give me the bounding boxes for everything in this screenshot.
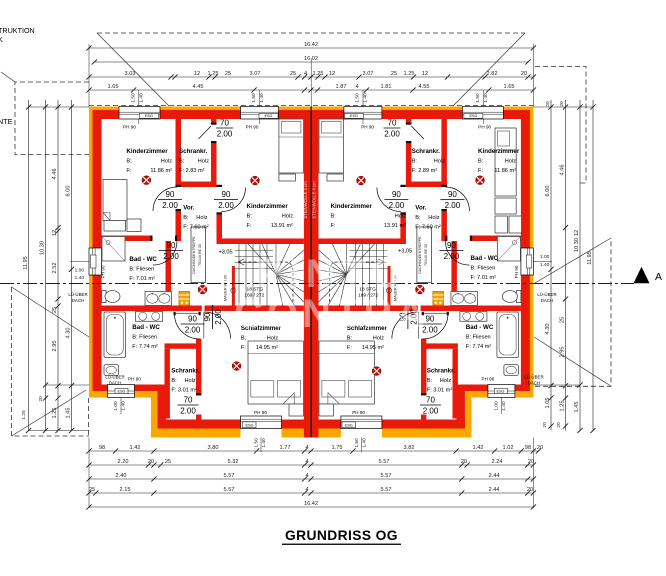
- svg-text:1.00: 1.00: [540, 254, 550, 260]
- svg-text:Holz: Holz: [196, 215, 207, 221]
- svg-text:1.40: 1.40: [259, 93, 265, 103]
- svg-text:1.40: 1.40: [540, 262, 550, 268]
- svg-text:DACH: DACH: [528, 381, 540, 386]
- svg-text:4: 4: [305, 459, 308, 465]
- svg-text:12: 12: [574, 230, 580, 236]
- svg-text:MAUER Hr 100: MAUER Hr 100: [223, 275, 227, 301]
- svg-text:LÜ-ÜBER: LÜ-ÜBER: [68, 292, 87, 297]
- svg-text:4.45: 4.45: [193, 84, 204, 90]
- svg-text:20: 20: [537, 445, 543, 451]
- svg-text:1.00: 1.00: [75, 268, 85, 274]
- svg-text:Holz: Holz: [282, 214, 293, 220]
- svg-text:B:: B:: [247, 214, 253, 220]
- svg-text:14.95 m²: 14.95 m²: [256, 345, 278, 351]
- svg-text:STEINWOLLE 4 cm: STEINWOLLE 4 cm: [303, 181, 308, 219]
- svg-text:2.00: 2.00: [384, 130, 400, 139]
- svg-text:2.20: 2.20: [118, 459, 129, 465]
- svg-text:2.00: 2.00: [444, 252, 460, 261]
- svg-text:4: 4: [305, 487, 308, 493]
- svg-text:K: K: [0, 35, 3, 44]
- svg-text:B:: B:: [171, 378, 177, 384]
- svg-text:F: 2.83 m²: F: 2.83 m²: [179, 168, 205, 174]
- svg-text:2.00: 2.00: [445, 201, 461, 210]
- svg-text:CONTRA: CONTRA: [234, 292, 429, 336]
- svg-text:B:: B:: [478, 159, 484, 165]
- svg-text:1.40: 1.40: [138, 93, 144, 103]
- svg-text:F: 7.01 m²: F: 7.01 m²: [471, 275, 497, 281]
- svg-text:90: 90: [166, 190, 175, 199]
- svg-text:2.00: 2.00: [180, 407, 196, 416]
- svg-text:ESG: ESG: [345, 423, 353, 427]
- svg-text:6.00: 6.00: [66, 186, 72, 197]
- svg-text:ESG: ESG: [264, 114, 272, 118]
- svg-text:1.05: 1.05: [545, 398, 551, 409]
- svg-text:+3,05: +3,05: [219, 250, 233, 256]
- svg-text:1.40: 1.40: [501, 401, 507, 411]
- svg-text:1.00: 1.00: [493, 401, 499, 411]
- svg-text:25: 25: [560, 317, 566, 323]
- svg-text:PH 90: PH 90: [128, 377, 141, 382]
- svg-text:1.40: 1.40: [121, 401, 127, 411]
- svg-text:ESG: ESG: [469, 114, 477, 118]
- svg-text:Bad - WC: Bad - WC: [466, 324, 494, 331]
- svg-text:Holz: Holz: [198, 159, 209, 165]
- svg-text:1.25: 1.25: [208, 71, 219, 77]
- svg-text:20: 20: [38, 396, 44, 402]
- svg-text:1.40: 1.40: [75, 275, 85, 281]
- svg-text:90: 90: [222, 190, 231, 199]
- svg-text:12: 12: [329, 71, 335, 77]
- svg-text:ESG: ESG: [245, 423, 253, 427]
- svg-text:5.57: 5.57: [379, 459, 390, 465]
- svg-text:STEINWOLLE 4 cm: STEINWOLLE 4 cm: [312, 181, 317, 219]
- svg-text:B:: B:: [415, 215, 421, 221]
- svg-text:B:: B:: [347, 336, 353, 342]
- svg-text:13.91 m²: 13.91 m²: [384, 223, 406, 229]
- svg-text:2.82: 2.82: [487, 71, 498, 77]
- svg-text:Schrankr.: Schrankr.: [179, 148, 207, 155]
- svg-text:2.44: 2.44: [489, 473, 500, 479]
- svg-text:2.00: 2.00: [389, 201, 405, 210]
- svg-text:3.07: 3.07: [363, 71, 374, 77]
- svg-text:20: 20: [559, 101, 565, 107]
- svg-text:2.00: 2.00: [423, 407, 439, 416]
- svg-text:2.00: 2.00: [162, 201, 178, 210]
- svg-text:Holz: Holz: [373, 336, 384, 342]
- svg-text:ESG: ESG: [117, 390, 125, 394]
- svg-text:16.42: 16.42: [304, 501, 318, 507]
- svg-text:5.57: 5.57: [381, 487, 392, 493]
- svg-text:F: 7.74 m²: F: 7.74 m²: [466, 344, 492, 350]
- svg-text:12: 12: [194, 71, 200, 77]
- svg-text:Holz: Holz: [267, 336, 278, 342]
- svg-text:25: 25: [290, 71, 296, 77]
- svg-text:5.57: 5.57: [224, 473, 235, 479]
- svg-text:2.52: 2.52: [52, 263, 58, 274]
- svg-text:Schrankr.: Schrankr.: [427, 368, 455, 375]
- svg-text:90: 90: [392, 190, 401, 199]
- svg-text:F:: F:: [331, 223, 336, 229]
- svg-text:PH 90: PH 90: [246, 125, 259, 130]
- svg-text:ESG: ESG: [350, 114, 358, 118]
- svg-text:1.00: 1.00: [113, 401, 119, 411]
- svg-text:3.07: 3.07: [250, 71, 261, 77]
- svg-text:F: 7.60 m²: F: 7.60 m²: [183, 225, 209, 231]
- svg-text:Holz: Holz: [395, 214, 406, 220]
- svg-text:PH 90: PH 90: [123, 125, 136, 130]
- svg-text:2.00: 2.00: [185, 326, 201, 335]
- svg-text:10.30: 10.30: [40, 241, 46, 255]
- svg-text:1.65: 1.65: [504, 84, 515, 90]
- svg-text:LÜ-ÜBER: LÜ-ÜBER: [105, 375, 124, 380]
- svg-text:Vor.: Vor.: [183, 205, 195, 212]
- svg-text:Bad - WC: Bad - WC: [132, 324, 160, 331]
- svg-text:Holz: Holz: [505, 159, 516, 165]
- svg-text:PH 90: PH 90: [361, 125, 374, 130]
- svg-text:Holz: Holz: [434, 159, 445, 165]
- svg-text:1.81: 1.81: [381, 84, 392, 90]
- svg-text:70: 70: [220, 119, 229, 128]
- svg-text:Vor.: Vor.: [415, 205, 427, 212]
- svg-text:25: 25: [52, 307, 58, 313]
- svg-text:B:: B:: [183, 215, 189, 221]
- svg-text:B: Fliesen: B: Fliesen: [129, 267, 154, 273]
- svg-text:F:: F:: [478, 168, 483, 174]
- svg-text:1.77: 1.77: [280, 445, 291, 451]
- svg-text:20: 20: [556, 422, 562, 428]
- svg-text:4.30: 4.30: [545, 324, 551, 335]
- svg-text:1.25: 1.25: [52, 408, 58, 419]
- svg-text:70/140 RE 30: 70/140 RE 30: [198, 244, 202, 266]
- svg-text:4.46: 4.46: [52, 169, 58, 180]
- svg-text:NTE: NTE: [0, 117, 13, 126]
- svg-text:DACH: DACH: [72, 298, 84, 303]
- svg-text:1.25: 1.25: [404, 71, 415, 77]
- svg-text:1.40: 1.40: [361, 438, 367, 448]
- svg-text:1.45: 1.45: [66, 408, 72, 419]
- svg-text:1.40: 1.40: [261, 438, 267, 448]
- svg-text:1.25: 1.25: [313, 71, 324, 77]
- svg-text:2.00: 2.00: [214, 309, 223, 325]
- svg-text:20: 20: [528, 459, 534, 465]
- svg-text:1.50: 1.50: [355, 93, 361, 103]
- svg-text:TRUKTION: TRUKTION: [0, 26, 35, 35]
- svg-text:1.45: 1.45: [574, 402, 580, 413]
- svg-text:B:: B:: [179, 159, 185, 165]
- svg-text:Bad - WC: Bad - WC: [129, 256, 157, 263]
- svg-text:70: 70: [388, 119, 397, 128]
- svg-text:Holz: Holz: [428, 215, 439, 221]
- svg-text:70: 70: [184, 396, 193, 405]
- svg-text:PH 90: PH 90: [482, 377, 495, 382]
- svg-text:GRUNDRISS OG: GRUNDRISS OG: [285, 528, 398, 543]
- svg-text:20: 20: [542, 422, 548, 428]
- svg-text:1.25: 1.25: [21, 410, 27, 420]
- svg-text:98: 98: [99, 445, 105, 451]
- svg-text:98: 98: [525, 445, 531, 451]
- svg-text:Kinderzimmer: Kinderzimmer: [247, 203, 289, 210]
- svg-text:1.40: 1.40: [363, 93, 369, 103]
- svg-text:11.95: 11.95: [23, 256, 29, 270]
- svg-text:B: Fliesen: B: Fliesen: [132, 335, 157, 341]
- svg-text:1.87: 1.87: [336, 84, 347, 90]
- svg-text:11.86 m²: 11.86 m²: [150, 168, 172, 174]
- svg-text:1.50: 1.50: [354, 438, 360, 448]
- svg-text:90: 90: [447, 241, 456, 250]
- svg-text:2.44: 2.44: [489, 487, 500, 493]
- svg-text:11.86 m²: 11.86 m²: [494, 168, 516, 174]
- svg-text:4: 4: [355, 84, 358, 90]
- svg-text:F:: F:: [347, 345, 352, 351]
- svg-text:F: 7.01 m²: F: 7.01 m²: [129, 276, 155, 282]
- svg-text:5.57: 5.57: [224, 487, 235, 493]
- svg-text:Holz: Holz: [184, 378, 195, 384]
- svg-text:2.00: 2.00: [218, 201, 234, 210]
- svg-text:B: Fliesen: B: Fliesen: [466, 335, 491, 341]
- svg-text:PH 90: PH 90: [514, 265, 519, 278]
- svg-text:1.40: 1.40: [483, 93, 489, 103]
- svg-text:ESG: ESG: [496, 390, 504, 394]
- svg-text:90: 90: [188, 315, 197, 324]
- svg-text:3.80: 3.80: [208, 445, 219, 451]
- svg-text:12: 12: [422, 71, 428, 77]
- svg-text:3.82: 3.82: [404, 445, 415, 451]
- svg-text:1.50: 1.50: [251, 93, 257, 103]
- svg-text:Schrankr.: Schrankr.: [171, 368, 199, 375]
- svg-text:1.42: 1.42: [473, 445, 484, 451]
- svg-text:B:: B:: [427, 378, 433, 384]
- svg-text:10.30: 10.30: [574, 238, 580, 252]
- svg-text:4.30: 4.30: [66, 328, 72, 339]
- svg-text:PH 90: PH 90: [101, 265, 106, 278]
- svg-text:1.42: 1.42: [130, 445, 141, 451]
- svg-text:25: 25: [391, 71, 397, 77]
- svg-text:Holz: Holz: [440, 378, 451, 384]
- svg-text:A: A: [655, 271, 662, 283]
- svg-text:12: 12: [52, 230, 58, 236]
- svg-text:90: 90: [203, 312, 212, 321]
- svg-text:DACH: DACH: [541, 298, 553, 303]
- svg-text:2.40: 2.40: [116, 473, 127, 479]
- svg-text:2.95: 2.95: [560, 347, 566, 358]
- svg-text:DACHBODENTREPPE: DACHBODENTREPPE: [192, 236, 196, 274]
- svg-text:F: 3.01 m²: F: 3.01 m²: [427, 388, 453, 394]
- svg-text:16.42: 16.42: [304, 42, 318, 48]
- svg-text:ESG: ESG: [145, 114, 153, 118]
- svg-text:14.95 m²: 14.95 m²: [362, 345, 384, 351]
- svg-text:B:: B:: [412, 159, 418, 165]
- svg-text:2.24: 2.24: [492, 459, 503, 465]
- svg-text:PH 90: PH 90: [352, 410, 365, 415]
- svg-text:20: 20: [527, 487, 533, 493]
- svg-text:F: 7.74 m²: F: 7.74 m²: [132, 344, 158, 350]
- svg-text:90: 90: [167, 241, 176, 250]
- svg-text:DACHBODENTREPPE: DACHBODENTREPPE: [418, 236, 422, 274]
- svg-text:6.00: 6.00: [545, 186, 551, 197]
- svg-text:2.95: 2.95: [52, 341, 58, 352]
- svg-text:Holz: Holz: [161, 159, 172, 165]
- svg-text:25: 25: [165, 459, 171, 465]
- svg-text:PINTO: PINTO: [256, 252, 408, 296]
- svg-text:4: 4: [304, 71, 307, 77]
- svg-text:4: 4: [305, 445, 308, 451]
- svg-text:F: 2.89 m²: F: 2.89 m²: [412, 168, 438, 174]
- svg-text:B:: B:: [241, 336, 247, 342]
- svg-text:F: 3.01 m²: F: 3.01 m²: [171, 388, 197, 394]
- svg-text:25: 25: [225, 71, 231, 77]
- svg-text:11.95: 11.95: [587, 251, 593, 265]
- svg-text:LÜ-ÜBER: LÜ-ÜBER: [524, 375, 543, 380]
- svg-text:70: 70: [426, 396, 435, 405]
- svg-text:B:: B:: [331, 214, 337, 220]
- svg-text:PH 90: PH 90: [254, 410, 267, 415]
- svg-text:2.00: 2.00: [217, 130, 233, 139]
- svg-text:20: 20: [521, 71, 527, 77]
- svg-text:4.46: 4.46: [560, 165, 566, 176]
- svg-text:1.75: 1.75: [332, 445, 343, 451]
- svg-text:1.25: 1.25: [560, 401, 566, 412]
- svg-text:B:: B:: [126, 159, 132, 165]
- svg-text:F:: F:: [241, 345, 246, 351]
- svg-text:DACH: DACH: [109, 381, 121, 386]
- svg-text:Bad - WC: Bad - WC: [471, 255, 499, 262]
- svg-text:Kinderzimmer: Kinderzimmer: [478, 148, 520, 155]
- svg-text:4: 4: [305, 473, 308, 479]
- svg-text:20: 20: [461, 459, 467, 465]
- svg-text:1.02: 1.02: [503, 445, 514, 451]
- svg-text:LÜ-ÜBER: LÜ-ÜBER: [537, 292, 556, 297]
- svg-text:2.15: 2.15: [120, 487, 131, 493]
- svg-text:25: 25: [89, 487, 95, 493]
- svg-text:Schrankr.: Schrankr.: [412, 148, 440, 155]
- svg-text:F:: F:: [126, 168, 131, 174]
- svg-text:13.91 m²: 13.91 m²: [271, 223, 293, 229]
- svg-text:1.50: 1.50: [475, 93, 481, 103]
- svg-text:Kinderzimmer: Kinderzimmer: [126, 148, 168, 155]
- svg-text:16.02: 16.02: [304, 56, 318, 62]
- svg-text:20: 20: [148, 459, 154, 465]
- svg-text:70/140 RE 30: 70/140 RE 30: [424, 244, 428, 266]
- svg-text:F: 7.60 m²: F: 7.60 m²: [415, 225, 441, 231]
- svg-text:Kinderzimmer: Kinderzimmer: [331, 203, 373, 210]
- svg-text:3.03: 3.03: [125, 71, 136, 77]
- svg-text:PH 90: PH 90: [478, 125, 491, 130]
- svg-text:B: Fliesen: B: Fliesen: [471, 266, 496, 272]
- svg-text:5.57: 5.57: [381, 473, 392, 479]
- svg-text:1.50: 1.50: [254, 438, 260, 448]
- svg-text:F:: F:: [247, 223, 252, 229]
- svg-text:90: 90: [448, 190, 457, 199]
- svg-text:4.55: 4.55: [419, 84, 430, 90]
- svg-text:20: 20: [545, 101, 551, 107]
- svg-text:1.50: 1.50: [130, 93, 136, 103]
- svg-text:1.65: 1.65: [108, 84, 119, 90]
- svg-text:5.32: 5.32: [228, 459, 239, 465]
- svg-text:2.00: 2.00: [163, 252, 179, 261]
